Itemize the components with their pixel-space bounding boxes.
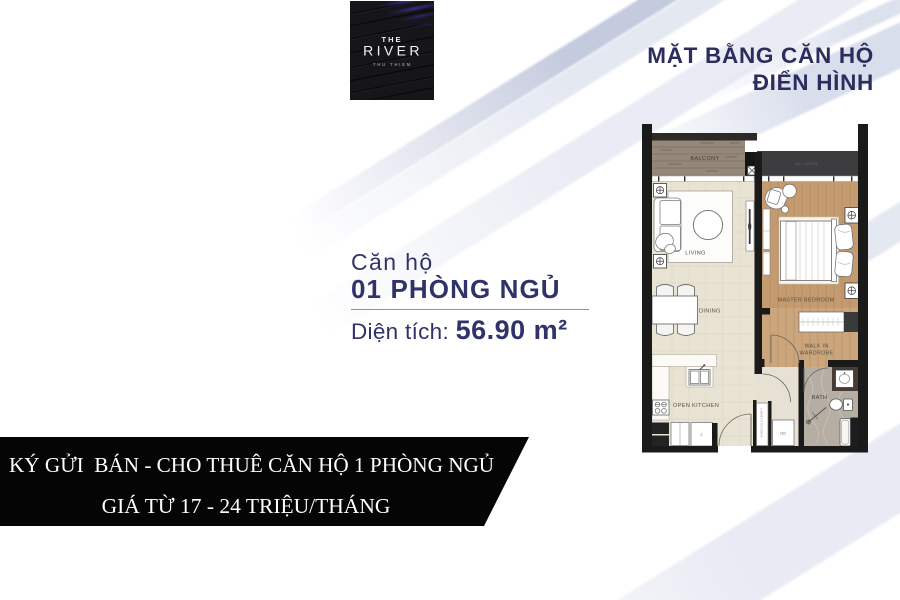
svg-text:WARDROBE: WARDROBE [800, 351, 834, 357]
svg-text:LIVING: LIVING [685, 251, 705, 257]
svg-text:WALK IN: WALK IN [804, 344, 828, 350]
svg-text:MASTER BEDROOM: MASTER BEDROOM [777, 298, 834, 304]
svg-text:SHOE/LG CABINET: SHOE/LG CABINET [760, 407, 764, 437]
svg-text:OPEN KITCHEN: OPEN KITCHEN [673, 403, 719, 409]
svg-text:F: F [700, 433, 703, 438]
svg-text:DINING: DINING [699, 308, 721, 314]
svg-text:AC LEDGE: AC LEDGE [795, 162, 818, 166]
svg-text:RD: RD [780, 431, 786, 436]
svg-text:BALCONY: BALCONY [690, 156, 719, 162]
svg-text:BATH: BATH [812, 395, 828, 401]
